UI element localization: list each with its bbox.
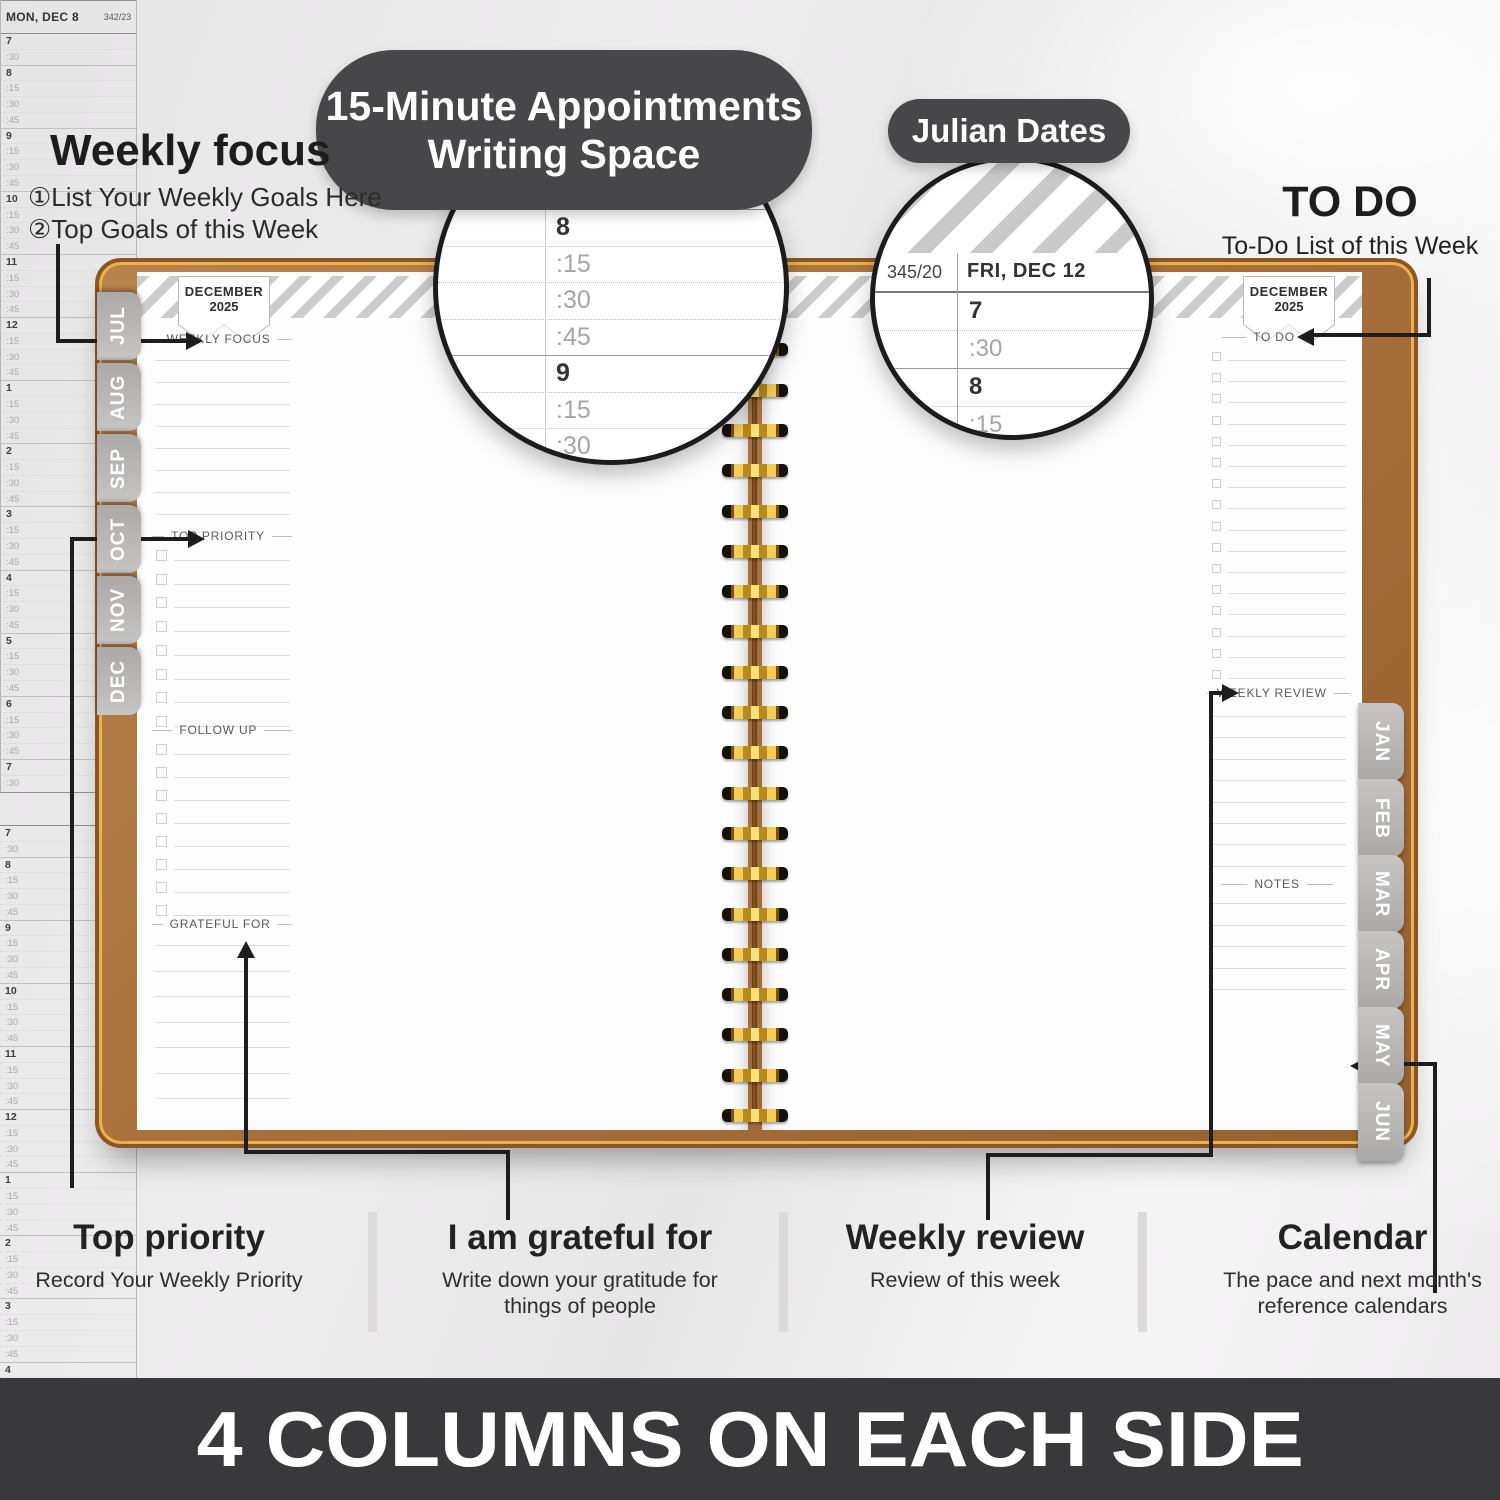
checkbox-row <box>1212 373 1346 382</box>
checkbox-row <box>1212 500 1346 509</box>
magnified-time-slot: 9 <box>438 356 784 393</box>
day-column-header: MON, DEC 8342/23 <box>1 0 136 34</box>
arrow-line <box>1209 691 1213 1157</box>
month-tab-feb: FEB <box>1358 779 1404 857</box>
arrow-line <box>56 244 60 343</box>
writing-line <box>1212 716 1346 717</box>
writing-line <box>1212 802 1346 803</box>
time-slot: :15 <box>0 1315 136 1331</box>
callout-divider <box>779 1212 788 1332</box>
writing-line <box>1212 737 1346 738</box>
checkbox-line <box>174 846 290 847</box>
checkbox-row <box>1212 628 1346 637</box>
month-tab-jul: JUL <box>97 292 141 360</box>
checkbox-row <box>156 621 290 632</box>
magnified-time-slot: :15 <box>438 393 784 430</box>
magnified-rows: 7:308:15:30 <box>875 293 1149 440</box>
spiral-coil <box>722 505 788 518</box>
checkbox-line <box>174 915 290 916</box>
checkbox-line <box>1228 424 1346 425</box>
month-tab-nov: NOV <box>97 576 141 644</box>
checkbox-line <box>174 754 290 755</box>
checkbox-row <box>1212 416 1346 425</box>
writing-line <box>155 470 290 471</box>
month-tab-mar: MAR <box>1358 855 1404 933</box>
checkbox <box>156 692 167 703</box>
month-tab-oct: OCT <box>97 505 141 573</box>
checkbox-line <box>174 892 290 893</box>
checkbox-line <box>1228 381 1346 382</box>
callout-divider <box>368 1212 377 1332</box>
callout-title: I am grateful for <box>395 1218 765 1258</box>
checkbox-row <box>156 790 290 801</box>
month-tab-jun: JUN <box>1358 1083 1404 1161</box>
checkbox-line <box>174 655 290 656</box>
label-dash <box>278 924 292 925</box>
time-slot: 3 <box>0 1299 136 1315</box>
month-tab-may: MAY <box>1358 1007 1404 1085</box>
writing-line <box>155 945 290 946</box>
checkbox-row <box>1212 564 1346 573</box>
checkbox-row <box>1212 670 1346 679</box>
follow-up-label-text: FOLLOW UP <box>179 723 257 737</box>
checkbox-line <box>1228 657 1346 658</box>
julian-magnifier-content: 345/20 FRI, DEC 12 7:308:15:30 <box>875 161 1149 435</box>
checkbox-row <box>156 574 290 585</box>
checkbox-line <box>1228 614 1346 615</box>
checkbox <box>156 859 167 870</box>
callout-grateful: I am grateful for Write down your gratit… <box>395 1218 765 1319</box>
writing-line <box>155 382 290 383</box>
checkbox-line <box>174 823 290 824</box>
notes-label: NOTES <box>1207 877 1347 891</box>
checkbox-row <box>1212 394 1346 403</box>
writing-line <box>1212 780 1346 781</box>
checkbox-line <box>1228 402 1346 403</box>
todo-label-text: TO DO <box>1253 330 1295 344</box>
spiral-coil <box>722 787 788 800</box>
checkbox-line <box>1228 466 1346 467</box>
checkbox <box>1212 352 1221 361</box>
spiral-coil <box>722 948 788 961</box>
todo-heading: TO DO <box>1230 178 1470 227</box>
checkbox-line <box>1228 445 1346 446</box>
arrow-line <box>244 1150 510 1154</box>
checkbox-row <box>156 836 290 847</box>
time-slot: :15 <box>0 1189 136 1205</box>
ribbon-year: 2025 <box>179 299 269 314</box>
checkbox-line <box>174 869 290 870</box>
grateful-for-label: GRATEFUL FOR <box>152 917 292 931</box>
writing-line <box>155 1073 290 1074</box>
label-dash <box>1307 884 1333 885</box>
time-slot: :30 <box>1 50 136 66</box>
magnified-day-header: 345/20 FRI, DEC 12 <box>875 253 1149 293</box>
callout-subtitle: Record Your Weekly Priority <box>18 1267 320 1293</box>
label-dash <box>1222 337 1246 338</box>
checkbox <box>1212 585 1221 594</box>
writing-line <box>1212 866 1346 867</box>
callout-weekly-review: Weekly review Review of this week <box>795 1218 1135 1293</box>
checkbox-row <box>156 597 290 608</box>
checkbox-line <box>1228 508 1346 509</box>
magnified-time-slot: 8 <box>875 369 1149 407</box>
day-label: MON, DEC 8 <box>6 10 79 24</box>
spiral-coil <box>722 625 788 638</box>
month-tab-jan: JAN <box>1358 703 1404 781</box>
magnified-time-slot: :45 <box>438 320 784 357</box>
writing-line <box>155 1047 290 1048</box>
checkbox-line <box>174 607 290 608</box>
spiral-coil <box>722 988 788 1001</box>
checkbox-row <box>1212 606 1346 615</box>
writing-line <box>155 360 290 361</box>
checkbox-row <box>156 744 290 755</box>
callout-subtitle: Review of this week <box>795 1267 1135 1293</box>
spiral-coil <box>722 1028 788 1041</box>
callout-title: Weekly review <box>795 1218 1135 1258</box>
time-slot: :15 <box>1 81 136 97</box>
checkbox <box>156 767 167 778</box>
bottom-banner: 4 COLUMNS ON EACH SIDE <box>0 1378 1500 1500</box>
label-dash <box>272 536 292 537</box>
callout-calendar: Calendar The pace and next month's refer… <box>1180 1218 1500 1319</box>
checkbox-row <box>1212 437 1346 446</box>
magnified-time-slot: 8 <box>438 210 784 247</box>
julian-magnifier-circle: 345/20 FRI, DEC 12 7:308:15:30 <box>870 156 1154 440</box>
checkbox-row <box>156 669 290 680</box>
label-dash <box>278 339 292 340</box>
time-slot: 8 <box>1 66 136 82</box>
weekly-focus-item1: ①List Your Weekly Goals Here <box>28 182 382 213</box>
writing-line <box>155 996 290 997</box>
label-dash <box>264 730 292 731</box>
writing-line <box>1212 989 1346 990</box>
spiral-coil <box>722 867 788 880</box>
spiral-coil <box>722 908 788 921</box>
month-tab-sep: SEP <box>97 434 141 502</box>
checkbox-line <box>174 679 290 680</box>
arrow-line <box>1427 278 1431 337</box>
banner-text: 4 COLUMNS ON EACH SIDE <box>196 1394 1303 1485</box>
checkbox-row <box>156 882 290 893</box>
checkbox <box>1212 670 1221 679</box>
checkbox-row <box>1212 479 1346 488</box>
checkbox <box>156 905 167 916</box>
spiral-coil <box>722 746 788 759</box>
ribbon-month: DECEMBER <box>179 284 269 299</box>
arrow-line <box>506 1150 510 1220</box>
callout-divider <box>1138 1212 1147 1332</box>
checkbox-row <box>156 550 290 561</box>
checkbox-row <box>1212 522 1346 531</box>
month-tab-apr: APR <box>1358 931 1404 1009</box>
arrowhead-icon <box>1222 684 1239 702</box>
checkbox-row <box>156 905 290 916</box>
checkbox <box>156 621 167 632</box>
checkbox <box>1212 522 1221 531</box>
julian-feature-pill: Julian Dates <box>888 99 1130 163</box>
checkbox <box>1212 373 1221 382</box>
checkbox-row <box>1212 649 1346 658</box>
checkbox-line <box>174 777 290 778</box>
arrow-line <box>986 1153 1213 1157</box>
notes-label-text: NOTES <box>1254 877 1299 891</box>
checkbox-row <box>1212 585 1346 594</box>
ribbon-month: DECEMBER <box>1244 284 1334 299</box>
checkbox <box>1212 416 1221 425</box>
writing-line <box>1212 946 1346 947</box>
checkbox <box>1212 479 1221 488</box>
checkbox-row <box>156 859 290 870</box>
checkbox <box>156 744 167 755</box>
arrowhead-icon <box>1297 328 1314 346</box>
checkbox-line <box>1228 678 1346 679</box>
time-slot: :45 <box>0 1347 136 1363</box>
checkbox-line <box>1228 593 1346 594</box>
follow-up-label: FOLLOW UP <box>152 723 292 737</box>
checkbox <box>1212 564 1221 573</box>
weekly-focus-item2: ②Top Goals of this Week <box>28 214 318 245</box>
checkbox <box>156 669 167 680</box>
label-dash <box>152 924 163 925</box>
checkbox-line <box>1228 572 1346 573</box>
product-feature-image: DECEMBER 2025 DECEMBER 2025 WEEKLY FOCUS… <box>0 0 1500 1500</box>
magnified-hatch-band <box>875 161 1149 253</box>
arrowhead-icon <box>188 530 205 548</box>
checkbox-row <box>1212 543 1346 552</box>
spiral-coil <box>722 827 788 840</box>
writing-line <box>155 426 290 427</box>
checkbox <box>1212 628 1221 637</box>
writing-line <box>155 448 290 449</box>
writing-line <box>1212 925 1346 926</box>
checkbox-line <box>174 800 290 801</box>
month-tab-aug: AUG <box>97 363 141 431</box>
checkbox <box>1212 543 1221 552</box>
magnified-time-slot: :30 <box>438 429 784 465</box>
checkbox-row <box>156 645 290 656</box>
writing-line <box>155 1022 290 1023</box>
writing-line <box>1212 844 1346 845</box>
spiral-coil <box>722 666 788 679</box>
checkbox <box>156 836 167 847</box>
spiral-coil <box>722 706 788 719</box>
checkbox <box>156 882 167 893</box>
magnified-julian-date: 345/20 <box>887 262 942 283</box>
pill-text: Julian Dates <box>888 112 1130 150</box>
callout-subtitle: Write down your gratitude for things of … <box>395 1267 765 1319</box>
julian-date: 342/23 <box>104 12 132 22</box>
checkbox-line <box>174 702 290 703</box>
writing-line <box>155 514 290 515</box>
checkbox-row <box>1212 458 1346 467</box>
checkbox <box>156 813 167 824</box>
spiral-coil <box>722 1109 788 1122</box>
pill-line1: 15-Minute Appointments <box>316 82 812 130</box>
writing-line <box>155 404 290 405</box>
checkbox <box>156 790 167 801</box>
month-tab-dec: DEC <box>97 647 141 715</box>
magnified-time-slot: 7 <box>875 293 1149 331</box>
label-dash <box>1221 884 1247 885</box>
checkbox-line <box>1228 487 1346 488</box>
weekly-focus-heading: Weekly focus <box>50 126 330 176</box>
spiral-coil <box>722 585 788 598</box>
checkbox-line <box>174 631 290 632</box>
checkbox <box>1212 458 1221 467</box>
spiral-coil <box>722 545 788 558</box>
spiral-coil <box>722 1069 788 1082</box>
writing-line <box>1212 968 1346 969</box>
time-slot: :30 <box>0 1331 136 1347</box>
appointments-feature-pill: 15-Minute Appointments Writing Space <box>316 50 812 210</box>
ribbon-year: 2025 <box>1244 299 1334 314</box>
writing-line <box>1212 903 1346 904</box>
checkbox-line <box>174 584 290 585</box>
time-slot: 4 <box>0 1363 136 1379</box>
callout-title: Calendar <box>1180 1218 1500 1258</box>
writing-line <box>155 492 290 493</box>
checkbox <box>156 597 167 608</box>
checkbox <box>156 645 167 656</box>
label-dash <box>152 730 172 731</box>
callout-subtitle: The pace and next month's reference cale… <box>1180 1267 1500 1319</box>
arrowhead-icon <box>186 332 203 350</box>
time-slot: :45 <box>0 1157 136 1173</box>
writing-line <box>155 1098 290 1099</box>
arrow-line <box>244 956 248 1154</box>
magnified-day-label: FRI, DEC 12 <box>967 260 1086 283</box>
checkbox-line <box>174 560 290 561</box>
time-slot: 7 <box>1 34 136 50</box>
writing-line <box>1212 759 1346 760</box>
spiral-coil <box>722 464 788 477</box>
checkbox <box>1212 606 1221 615</box>
todo-subheading: To-Do List of this Week <box>1175 232 1500 261</box>
checkbox <box>1212 394 1221 403</box>
checkbox <box>1212 437 1221 446</box>
pill-line2: Writing Space <box>316 130 812 178</box>
magnified-time-slot: :30 <box>438 283 784 320</box>
grateful-for-label-text: GRATEFUL FOR <box>170 917 271 931</box>
checkbox-line <box>1228 636 1346 637</box>
checkbox <box>156 550 167 561</box>
arrow-line <box>986 1153 990 1220</box>
checkbox-row <box>156 813 290 824</box>
checkbox <box>1212 649 1221 658</box>
checkbox-line <box>1228 551 1346 552</box>
writing-line <box>155 971 290 972</box>
arrow-line <box>70 537 74 1188</box>
checkbox <box>1212 500 1221 509</box>
magnified-time-slot: :30 <box>875 331 1149 369</box>
arrow-line <box>1313 333 1431 337</box>
magnified-time-slot: :15 <box>438 247 784 284</box>
checkbox-row <box>1212 352 1346 361</box>
checkbox-row <box>156 692 290 703</box>
writing-line <box>1212 823 1346 824</box>
label-dash <box>1334 693 1350 694</box>
time-slot: 1 <box>0 1173 136 1189</box>
checkbox-line <box>1228 360 1346 361</box>
checkbox <box>156 574 167 585</box>
time-slot: :30 <box>1 97 136 113</box>
checkbox-line <box>1228 530 1346 531</box>
callout-top-priority: Top priority Record Your Weekly Priority <box>18 1218 320 1293</box>
checkbox-row <box>156 767 290 778</box>
callout-title: Top priority <box>18 1218 320 1258</box>
